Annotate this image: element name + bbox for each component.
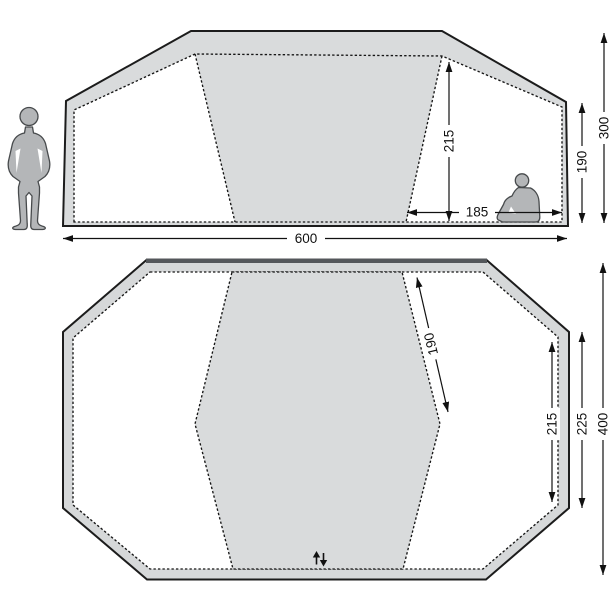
dim-total-width-label: 600 bbox=[295, 231, 318, 246]
standing-person-head bbox=[20, 108, 38, 126]
dim-outer-cabin-depth: 225 bbox=[574, 332, 590, 508]
dim-total-height-label: 300 bbox=[597, 117, 612, 140]
dim-inner-cabin-depth-label: 215 bbox=[545, 413, 560, 436]
seated-person-head bbox=[515, 174, 528, 187]
dim-total-width: 600 bbox=[63, 231, 567, 247]
plan-center-living-area bbox=[195, 272, 440, 569]
dim-inner-width-label: 185 bbox=[466, 205, 489, 220]
side-elevation-view: 215 185 190 300 bbox=[8, 31, 612, 246]
floor-plan-view: 190 215 225 400 bbox=[63, 260, 611, 580]
standing-person-icon bbox=[8, 108, 50, 230]
dim-side-wall-height: 190 bbox=[574, 103, 590, 223]
dim-inner-height-label: 215 bbox=[442, 130, 457, 153]
dim-outer-cabin-depth-label: 225 bbox=[575, 413, 590, 436]
diagram-canvas: 215 185 190 300 bbox=[0, 0, 613, 613]
dim-side-wall-height-label: 190 bbox=[575, 151, 590, 174]
dim-total-depth-label: 400 bbox=[596, 413, 611, 436]
dim-total-height: 300 bbox=[596, 33, 612, 223]
tent-dimension-diagram: 215 185 190 300 bbox=[0, 0, 613, 613]
dim-total-depth: 400 bbox=[595, 263, 611, 575]
standing-person-body bbox=[8, 127, 50, 230]
